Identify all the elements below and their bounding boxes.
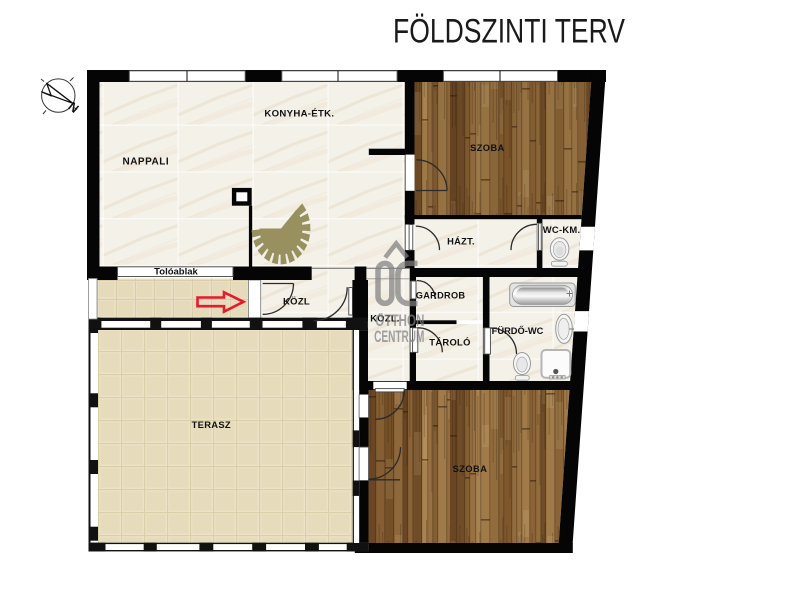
- svg-text:HÁZT.: HÁZT.: [447, 237, 475, 247]
- svg-text:KONYHA-ÉTK.: KONYHA-ÉTK.: [264, 108, 334, 120]
- svg-text:WC-KM.: WC-KM.: [543, 224, 581, 235]
- svg-text:FÖLDSZINTI TERV: FÖLDSZINTI TERV: [393, 13, 625, 51]
- svg-text:NAPPALI: NAPPALI: [122, 157, 169, 168]
- svg-text:CENTRUM: CENTRUM: [374, 327, 424, 346]
- svg-text:KÖZL: KÖZL: [283, 296, 310, 307]
- svg-text:TERASZ: TERASZ: [192, 419, 231, 430]
- svg-text:SZOBA: SZOBA: [470, 143, 505, 153]
- svg-text:Tolóablak: Tolóablak: [154, 267, 198, 278]
- svg-text:GARDROB: GARDROB: [416, 291, 466, 301]
- svg-text:TÁROLÓ: TÁROLÓ: [429, 337, 470, 348]
- svg-text:FÜRDŐ-WC: FÜRDŐ-WC: [492, 325, 544, 336]
- svg-text:SZOBA: SZOBA: [453, 464, 488, 474]
